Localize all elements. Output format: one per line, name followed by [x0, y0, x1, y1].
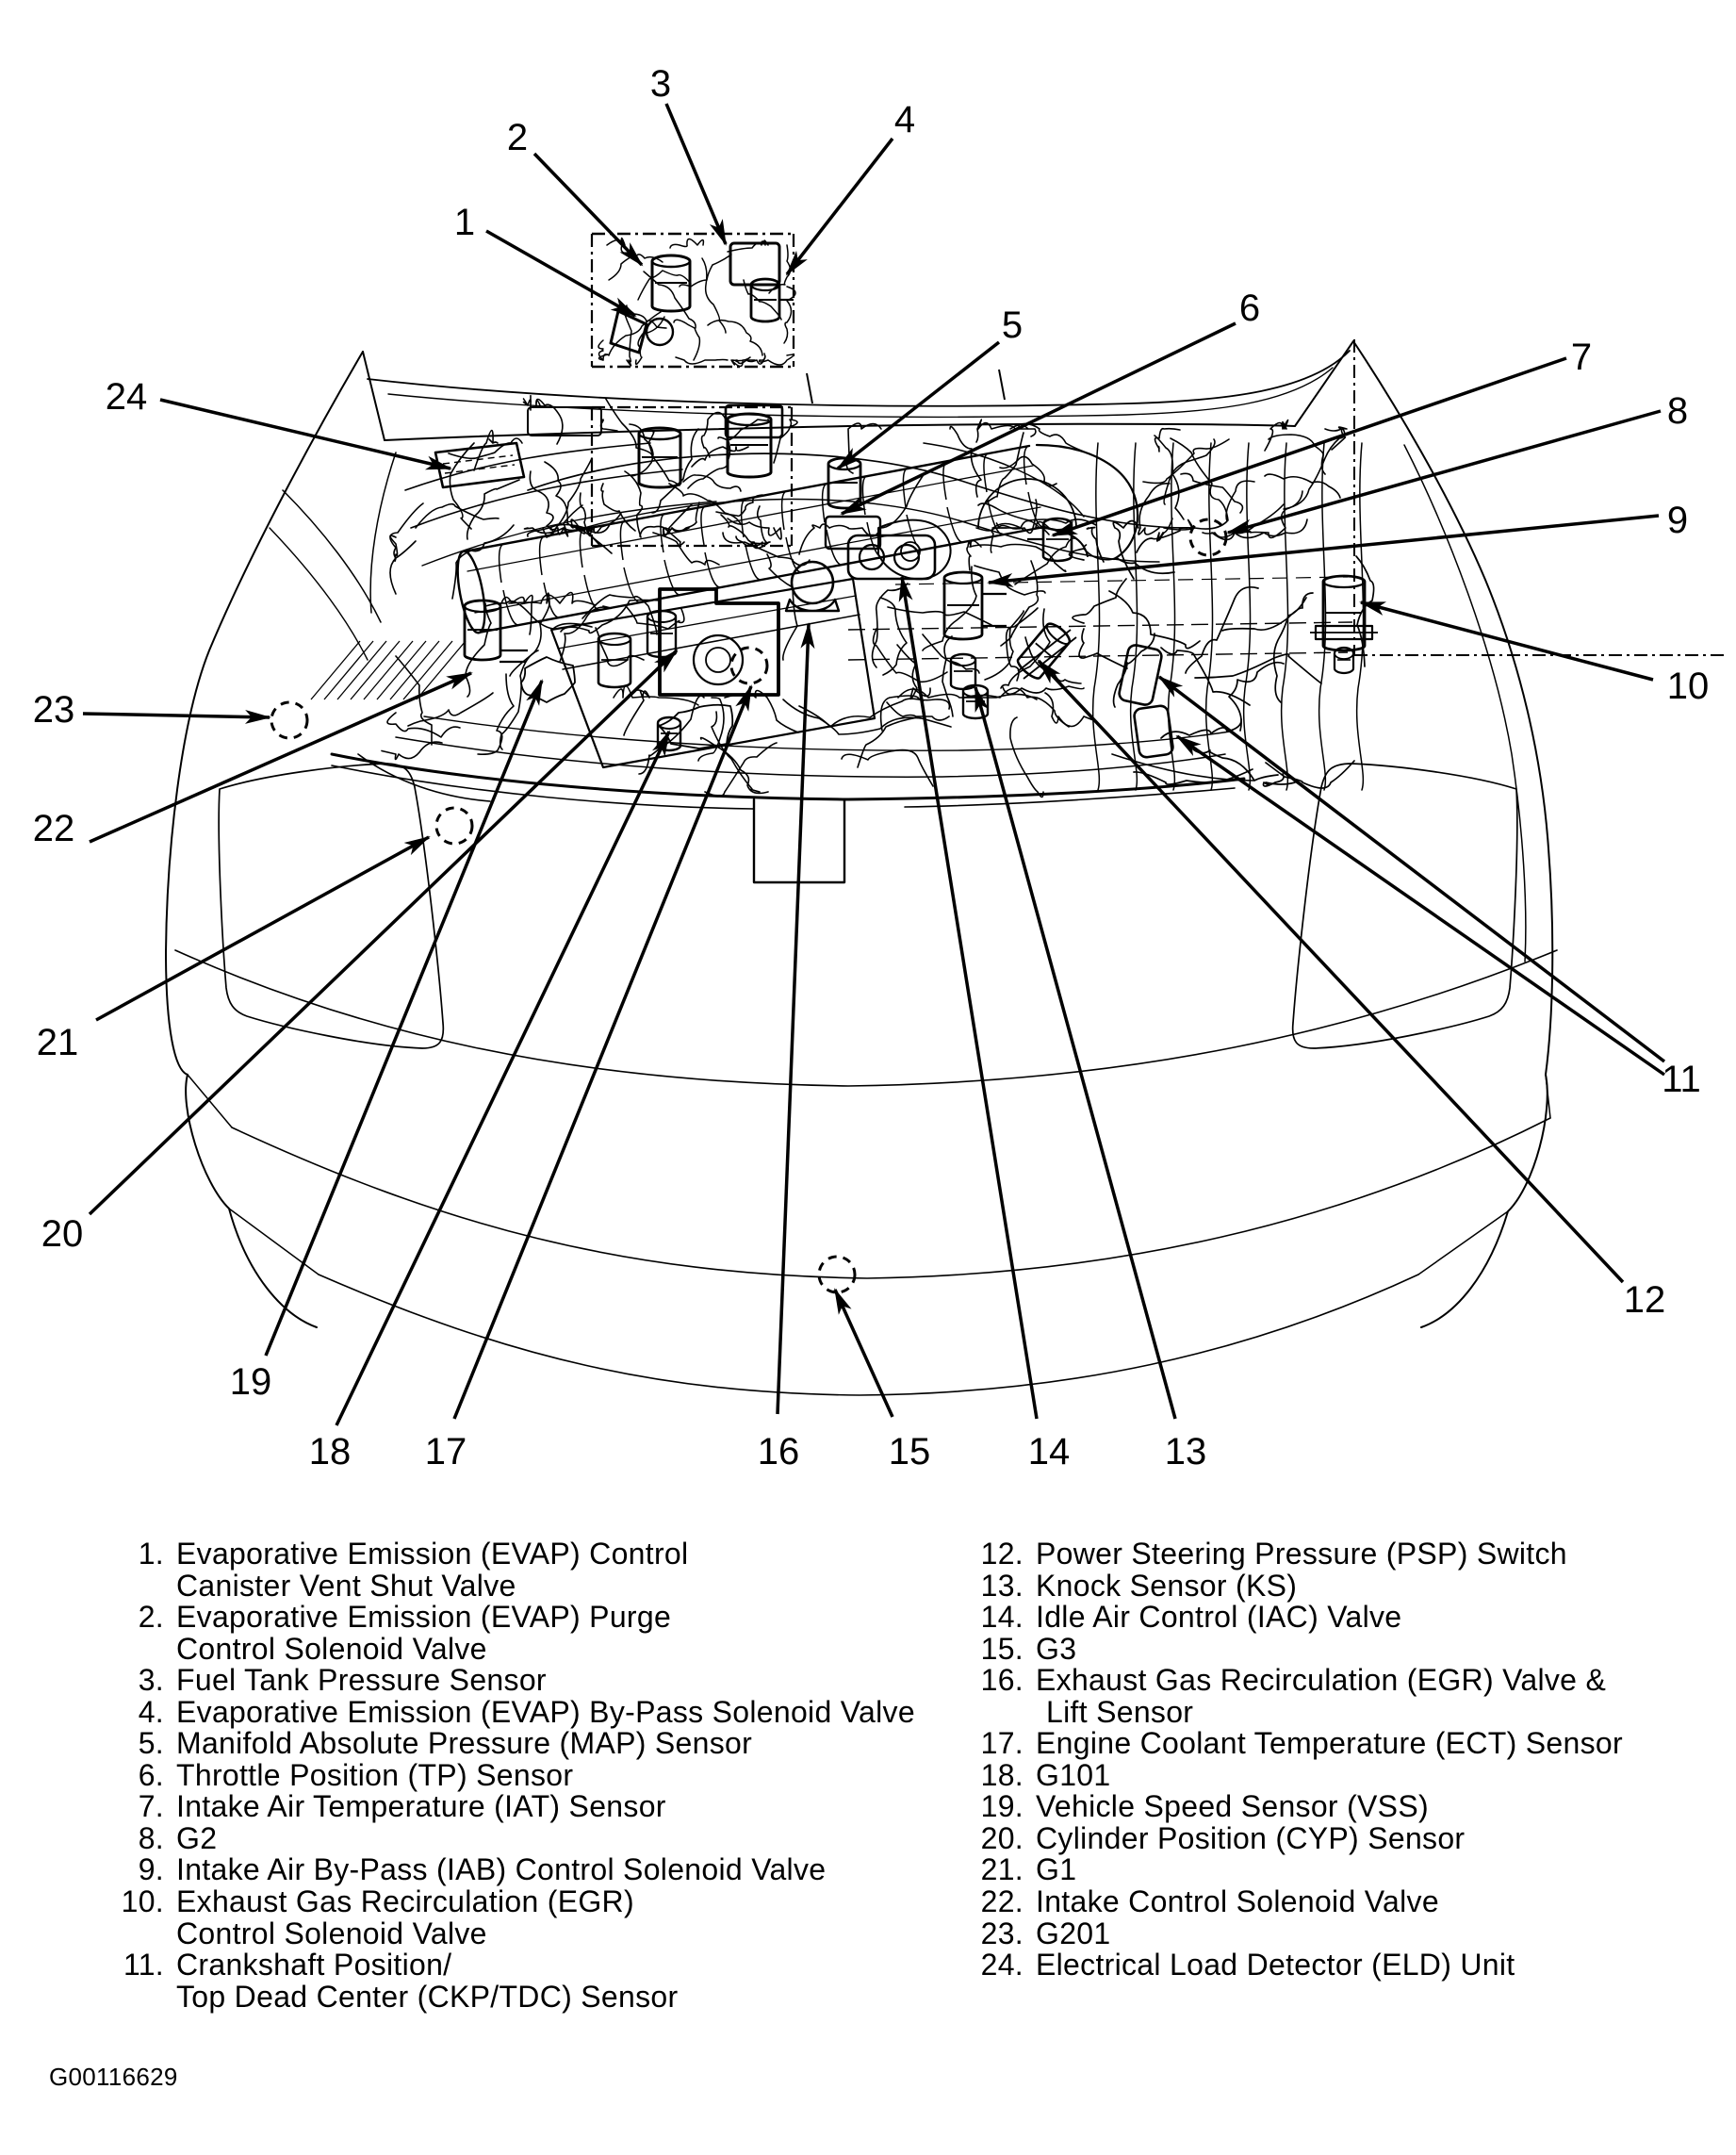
svg-text:2: 2 [507, 117, 528, 158]
svg-text:13.: 13. [981, 1569, 1024, 1603]
svg-text:Throttle Position (TP) Sensor: Throttle Position (TP) Sensor [176, 1758, 573, 1792]
svg-text:3: 3 [650, 63, 671, 105]
svg-text:G2: G2 [176, 1821, 217, 1855]
svg-text:23.: 23. [981, 1916, 1024, 1950]
svg-text:Lift Sensor: Lift Sensor [1046, 1695, 1193, 1729]
svg-text:5: 5 [1002, 304, 1023, 346]
svg-text:Control Solenoid Valve: Control Solenoid Valve [176, 1916, 487, 1950]
svg-text:Idle Air Control (IAC) Valve: Idle Air Control (IAC) Valve [1036, 1600, 1401, 1634]
svg-text:G101: G101 [1036, 1758, 1110, 1792]
svg-text:Exhaust Gas Recirculation (EGR: Exhaust Gas Recirculation (EGR) Valve & [1036, 1663, 1606, 1697]
svg-text:6.: 6. [139, 1758, 164, 1792]
svg-text:Canister Vent Shut Valve: Canister Vent Shut Valve [176, 1569, 516, 1603]
svg-text:19: 19 [230, 1361, 272, 1403]
svg-text:G1: G1 [1036, 1852, 1076, 1886]
svg-text:Engine Coolant Temperature (EC: Engine Coolant Temperature (ECT) Sensor [1036, 1726, 1623, 1760]
svg-text:17.: 17. [981, 1726, 1024, 1760]
svg-text:15: 15 [889, 1431, 931, 1472]
svg-text:23: 23 [33, 689, 75, 731]
svg-text:9: 9 [1667, 500, 1688, 541]
svg-text:Cylinder Position (CYP) Sensor: Cylinder Position (CYP) Sensor [1036, 1821, 1465, 1855]
svg-text:Control Solenoid Valve: Control Solenoid Valve [176, 1632, 487, 1666]
svg-text:Intake Air By-Pass (IAB) Contr: Intake Air By-Pass (IAB) Control Solenoi… [176, 1852, 826, 1886]
svg-text:7.: 7. [139, 1789, 164, 1823]
svg-text:Top Dead Center (CKP/TDC) Sens: Top Dead Center (CKP/TDC) Sensor [176, 1980, 679, 2014]
svg-text:G3: G3 [1036, 1632, 1076, 1666]
svg-text:22: 22 [33, 808, 75, 849]
svg-text:9.: 9. [139, 1852, 164, 1886]
svg-text:18.: 18. [981, 1758, 1024, 1792]
svg-text:4: 4 [894, 99, 915, 140]
svg-text:14.: 14. [981, 1600, 1024, 1634]
svg-text:Evaporative Emission (EVAP) Co: Evaporative Emission (EVAP) Control [176, 1537, 688, 1571]
svg-text:6: 6 [1239, 288, 1260, 329]
svg-text:11.: 11. [123, 1948, 164, 1982]
svg-text:Crankshaft Position/: Crankshaft Position/ [176, 1948, 451, 1982]
svg-text:4.: 4. [139, 1695, 164, 1729]
svg-text:21: 21 [37, 1022, 79, 1063]
svg-text:20.: 20. [981, 1821, 1024, 1855]
svg-text:14: 14 [1028, 1431, 1071, 1472]
svg-text:12: 12 [1624, 1279, 1666, 1321]
svg-text:19.: 19. [981, 1789, 1024, 1823]
svg-text:Intake Control Solenoid Valve: Intake Control Solenoid Valve [1036, 1884, 1439, 1918]
svg-text:Knock Sensor (KS): Knock Sensor (KS) [1036, 1569, 1297, 1603]
svg-text:18: 18 [309, 1431, 352, 1472]
svg-text:22.: 22. [981, 1884, 1024, 1918]
svg-text:Fuel Tank Pressure Sensor: Fuel Tank Pressure Sensor [176, 1663, 547, 1697]
svg-text:5.: 5. [139, 1726, 164, 1760]
svg-text:17: 17 [425, 1431, 467, 1472]
svg-text:Evaporative Emission (EVAP) Pu: Evaporative Emission (EVAP) Purge [176, 1600, 671, 1634]
svg-text:12.: 12. [981, 1537, 1024, 1571]
svg-text:8: 8 [1667, 390, 1688, 432]
svg-text:Manifold Absolute Pressure (MA: Manifold Absolute Pressure (MAP) Sensor [176, 1726, 752, 1760]
svg-text:3.: 3. [139, 1663, 164, 1697]
svg-text:11: 11 [1662, 1059, 1701, 1100]
svg-text:24.: 24. [981, 1948, 1024, 1982]
svg-text:G00116629: G00116629 [49, 2063, 178, 2091]
svg-text:Power Steering Pressure (PSP): Power Steering Pressure (PSP) Switch [1036, 1537, 1567, 1571]
svg-text:20: 20 [41, 1213, 84, 1255]
svg-text:10: 10 [1667, 666, 1710, 707]
svg-text:13: 13 [1165, 1431, 1207, 1472]
svg-text:Exhaust Gas Recirculation (EGR: Exhaust Gas Recirculation (EGR) [176, 1884, 634, 1918]
svg-text:15.: 15. [981, 1632, 1024, 1666]
svg-text:Electrical Load Detector (ELD): Electrical Load Detector (ELD) Unit [1036, 1948, 1515, 1982]
svg-text:21.: 21. [981, 1852, 1024, 1886]
svg-text:7: 7 [1571, 337, 1592, 378]
svg-text:10.: 10. [122, 1884, 164, 1918]
svg-text:16.: 16. [981, 1663, 1024, 1697]
svg-text:1.: 1. [139, 1537, 164, 1571]
svg-text:16: 16 [758, 1431, 800, 1472]
svg-text:2.: 2. [139, 1600, 164, 1634]
svg-text:24: 24 [106, 376, 148, 418]
svg-text:Vehicle Speed Sensor (VSS): Vehicle Speed Sensor (VSS) [1036, 1789, 1429, 1823]
svg-text:1: 1 [454, 202, 475, 243]
svg-text:Intake Air Temperature (IAT) S: Intake Air Temperature (IAT) Sensor [176, 1789, 666, 1823]
svg-text:Evaporative Emission (EVAP) By: Evaporative Emission (EVAP) By-Pass Sole… [176, 1695, 915, 1729]
svg-text:G201: G201 [1036, 1916, 1110, 1950]
svg-text:8.: 8. [139, 1821, 164, 1855]
